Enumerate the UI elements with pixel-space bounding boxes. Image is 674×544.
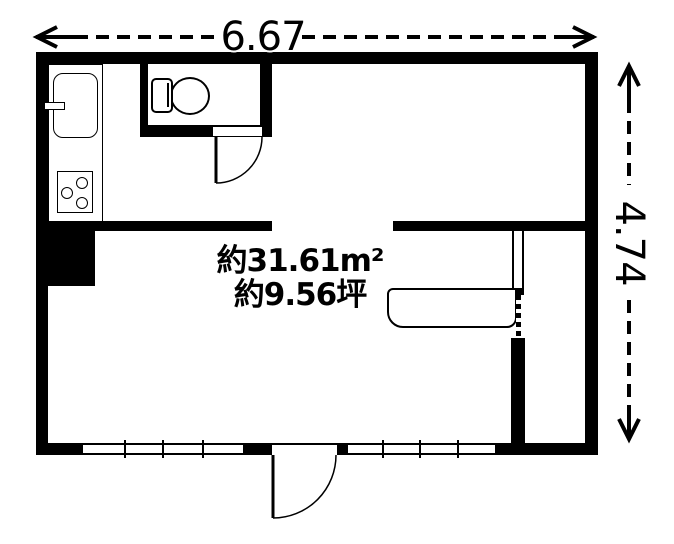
wall-bottom-segment-3 (337, 443, 348, 455)
floor-plan: 6.67 4.74 約31.61m² 約9.56坪 (0, 0, 674, 544)
toilet-bowl (170, 77, 210, 115)
kitchen-faucet (44, 102, 65, 110)
toilet-door-swing (216, 137, 262, 183)
area-tsubo: 約9.56坪 (185, 278, 415, 312)
entrance-door-swing (273, 455, 336, 518)
divider-wall (511, 338, 525, 455)
arrow-left-icon (37, 27, 57, 47)
window-1-mullion (202, 440, 204, 458)
window-2-mullion (457, 440, 459, 458)
wall-right (585, 52, 598, 455)
entrance-door-opening (272, 443, 337, 455)
window-2-mullion (382, 440, 384, 458)
area-square-meters: 約31.61m² (185, 244, 415, 278)
height-dimension-label: 4.74 (607, 188, 651, 298)
width-dimension-label: 6.67 (208, 15, 318, 59)
toilet-wall-bottom (140, 125, 213, 137)
arrow-up-icon (619, 66, 639, 86)
sliding-door (512, 231, 524, 288)
pillar-block (36, 221, 95, 286)
window-2-mullion (419, 440, 421, 458)
window-1-mullion (124, 440, 126, 458)
partition-wall-right (393, 221, 598, 231)
window-1-mullion (162, 440, 164, 458)
stove-burner (76, 197, 88, 209)
arrow-down-icon (619, 419, 639, 439)
toilet-flush-handle (167, 83, 169, 107)
wall-bottom-segment-2 (243, 443, 272, 455)
area-text-block: 約31.61m² 約9.56坪 (185, 244, 415, 312)
stove-burner (61, 187, 73, 199)
toilet-door-opening (213, 125, 262, 137)
wall-bottom-segment-1 (36, 443, 83, 455)
arrow-right-icon (573, 27, 593, 47)
stove-burner (76, 177, 88, 189)
folding-door-dashed (516, 295, 521, 338)
window-2 (348, 443, 495, 455)
toilet-tank (151, 78, 173, 113)
